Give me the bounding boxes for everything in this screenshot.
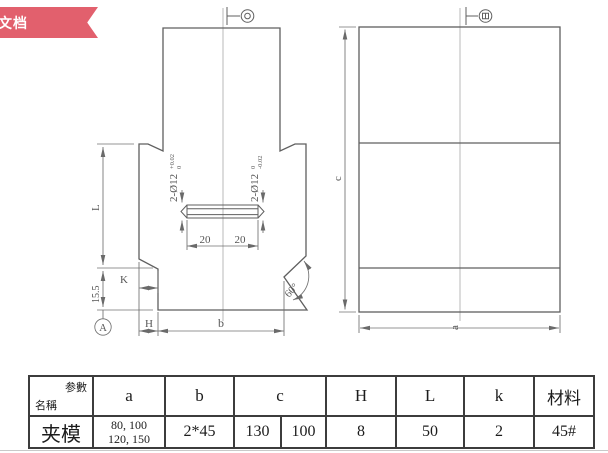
left-view-dimension-labels: 2-Ø12 +0.02 0 2-Ø12 0 -0.02 20 20 L 15.5… <box>90 154 301 334</box>
header-k: k <box>464 376 534 416</box>
dim-H-label: H <box>145 318 153 330</box>
page-bottom-edge <box>0 450 608 451</box>
drawing-page: 2-Ø12 +0.02 0 2-Ø12 0 -0.02 20 20 L 15.5… <box>0 0 608 453</box>
cell-a: 80, 100 120, 150 <box>93 416 165 448</box>
right-view: c a <box>332 7 560 333</box>
dim-c-label: c <box>332 176 344 181</box>
hole-dim-right-tol-top: 0 <box>250 166 257 169</box>
slot-dim-left-label: 20 <box>200 234 212 246</box>
cell-k: 2 <box>464 416 534 448</box>
header-b: b <box>165 376 234 416</box>
hole-dim-left-tol-top: +0.02 <box>169 154 176 169</box>
table-header-row: 参數 名稱 a b c H L k 材料 <box>29 376 594 416</box>
hole-dim-left-label: 2-Ø12 +0.02 0 <box>168 154 183 202</box>
corner-header-cell: 参數 名稱 <box>29 376 93 416</box>
cell-H: 8 <box>326 416 396 448</box>
parameter-table: 参數 名稱 a b c H L k 材料 夹模 80, 100 120, 150… <box>28 375 595 449</box>
header-c: c <box>234 376 326 416</box>
dim-K-label: K <box>120 274 128 286</box>
cell-c1: 130 <box>234 416 281 448</box>
dim-b-label: b <box>218 316 224 330</box>
left-view: 2-Ø12 +0.02 0 2-Ø12 0 -0.02 20 20 L 15.5… <box>90 7 309 336</box>
cell-part-name: 夹模 <box>29 416 93 448</box>
doc-ribbon-badge[interactable]: 文档 <box>0 7 98 38</box>
hole-dim-left-tol-bottom: 0 <box>176 166 183 169</box>
datum-a-label: A <box>99 323 107 334</box>
table-data-row: 夹模 80, 100 120, 150 2*45 130 100 8 50 2 … <box>29 416 594 448</box>
header-a: a <box>93 376 165 416</box>
header-L: L <box>396 376 464 416</box>
dim-15-5-label: 15.5 <box>91 286 102 304</box>
cell-L: 50 <box>396 416 464 448</box>
dim-a-label: a <box>449 325 461 330</box>
cell-material: 45# <box>534 416 594 448</box>
corner-label-parameter: 参數 <box>65 379 87 395</box>
datum-target-icon <box>227 7 254 25</box>
corner-label-name: 名稱 <box>35 397 57 413</box>
hole-dim-left-main: 2-Ø12 <box>168 174 180 202</box>
hole-dim-right-label: 2-Ø12 0 -0.02 <box>249 155 264 202</box>
cell-a-line2: 120, 150 <box>94 432 164 446</box>
datum-target-icon-2 <box>466 7 492 25</box>
cell-c2: 100 <box>281 416 326 448</box>
hole-dim-right-main: 2-Ø12 <box>249 174 261 202</box>
cell-a-line1: 80, 100 <box>94 418 164 432</box>
header-material: 材料 <box>534 376 594 416</box>
slot-dim-right-label: 20 <box>235 234 247 246</box>
cell-b: 2*45 <box>165 416 234 448</box>
badge-label: 文档 <box>0 13 28 33</box>
header-H: H <box>326 376 396 416</box>
technical-drawing: 2-Ø12 +0.02 0 2-Ø12 0 -0.02 20 20 L 15.5… <box>0 0 608 372</box>
hole-dim-right-tol-bottom: -0.02 <box>257 155 264 169</box>
right-view-dimension-lines <box>339 27 560 333</box>
right-view-outline <box>359 27 560 312</box>
dim-L-label: L <box>90 204 102 211</box>
slot-shape <box>181 205 264 218</box>
